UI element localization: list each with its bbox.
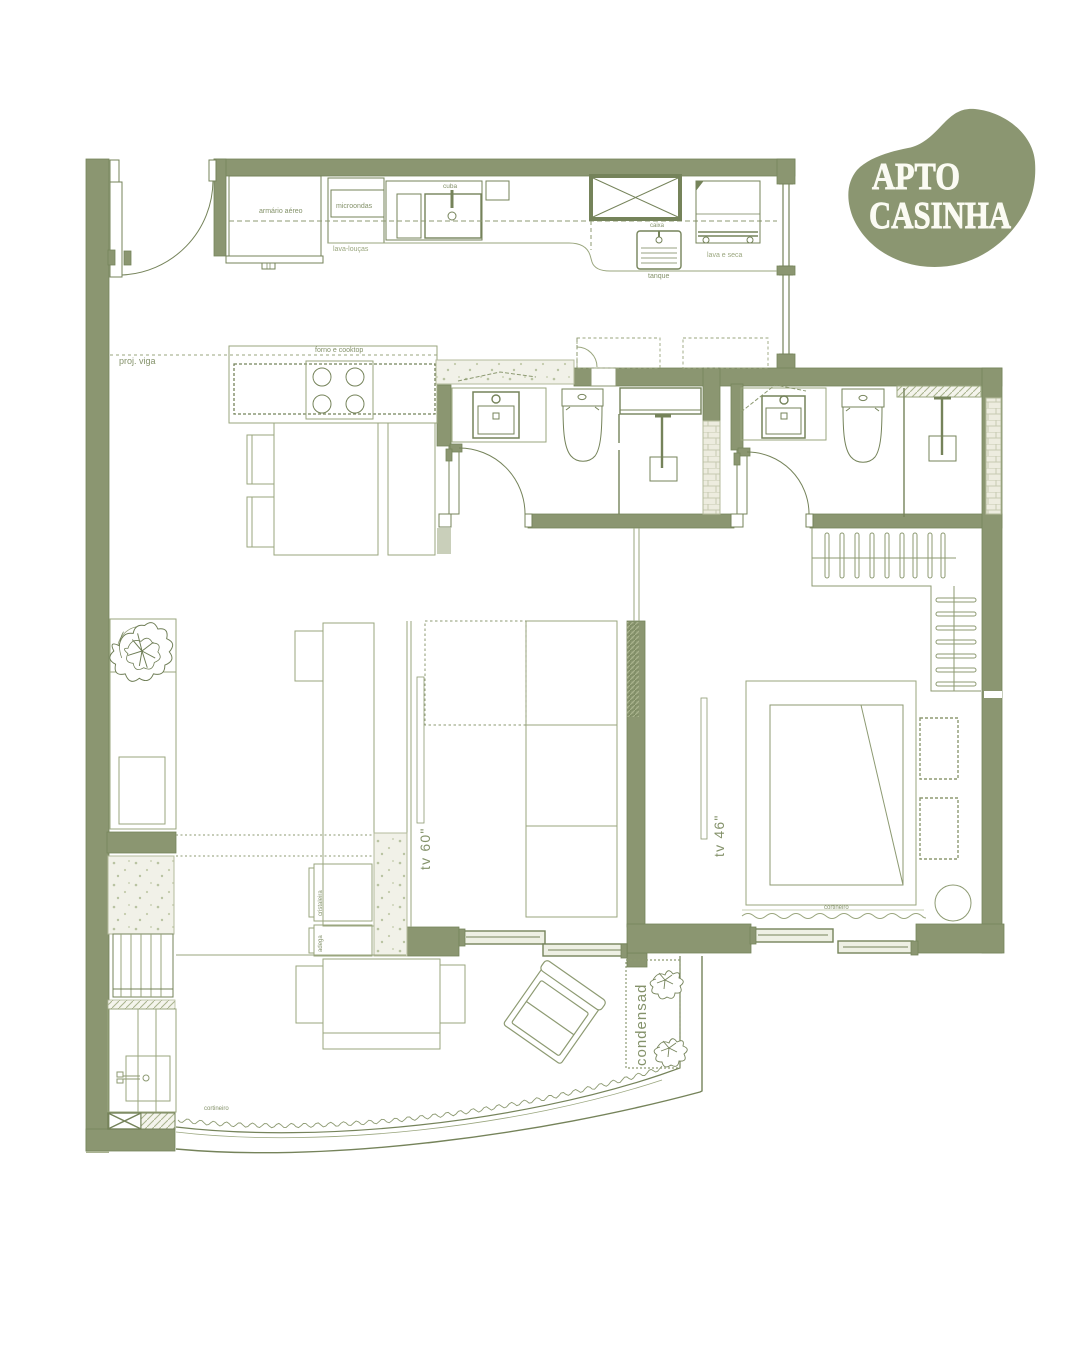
svg-text:caixa: caixa (650, 223, 665, 229)
svg-text:tv 60": tv 60" (417, 827, 433, 870)
svg-text:cortineiro: cortineiro (824, 905, 849, 911)
svg-text:tv 46": tv 46" (711, 814, 727, 857)
svg-text:adega: adega (318, 935, 324, 952)
svg-text:condensad: condensad (633, 984, 650, 1066)
svg-text:lava e seca: lava e seca (707, 252, 743, 259)
svg-text:cuba: cuba (443, 183, 457, 190)
svg-text:forno e cooktop: forno e cooktop (315, 347, 363, 354)
svg-text:lava-louças: lava-louças (333, 246, 369, 253)
svg-text:APTO: APTO (872, 156, 960, 198)
svg-text:tanque: tanque (648, 273, 670, 280)
svg-text:CASINHA: CASINHA (869, 195, 1011, 237)
svg-text:armário aéreo: armário aéreo (259, 208, 303, 215)
svg-text:proj. viga: proj. viga (119, 356, 156, 366)
svg-text:microondas: microondas (336, 203, 373, 210)
svg-text:cortineiro: cortineiro (204, 1106, 229, 1112)
svg-text:cristaleira: cristaleira (318, 890, 324, 916)
